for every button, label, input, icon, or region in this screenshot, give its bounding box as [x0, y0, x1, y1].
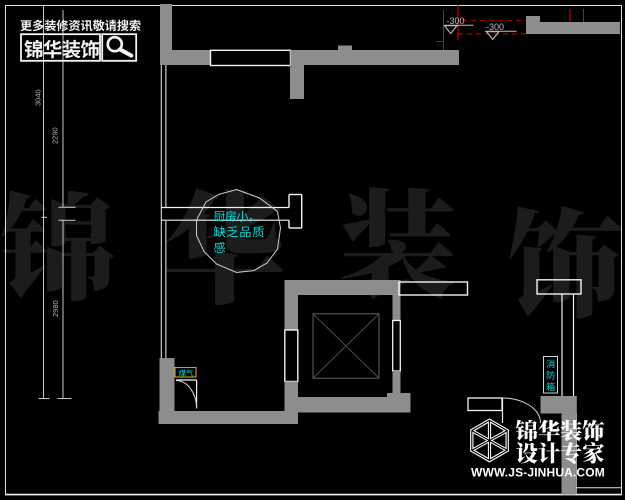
svg-text:2980: 2980 — [51, 300, 60, 317]
svg-text:3040: 3040 — [34, 89, 43, 106]
svg-text:-300: -300 — [486, 22, 504, 32]
svg-text:WWW.JS-JINHUA.COM: WWW.JS-JINHUA.COM — [471, 466, 605, 480]
svg-text:-300: -300 — [447, 16, 465, 26]
svg-text:2290: 2290 — [51, 127, 60, 144]
